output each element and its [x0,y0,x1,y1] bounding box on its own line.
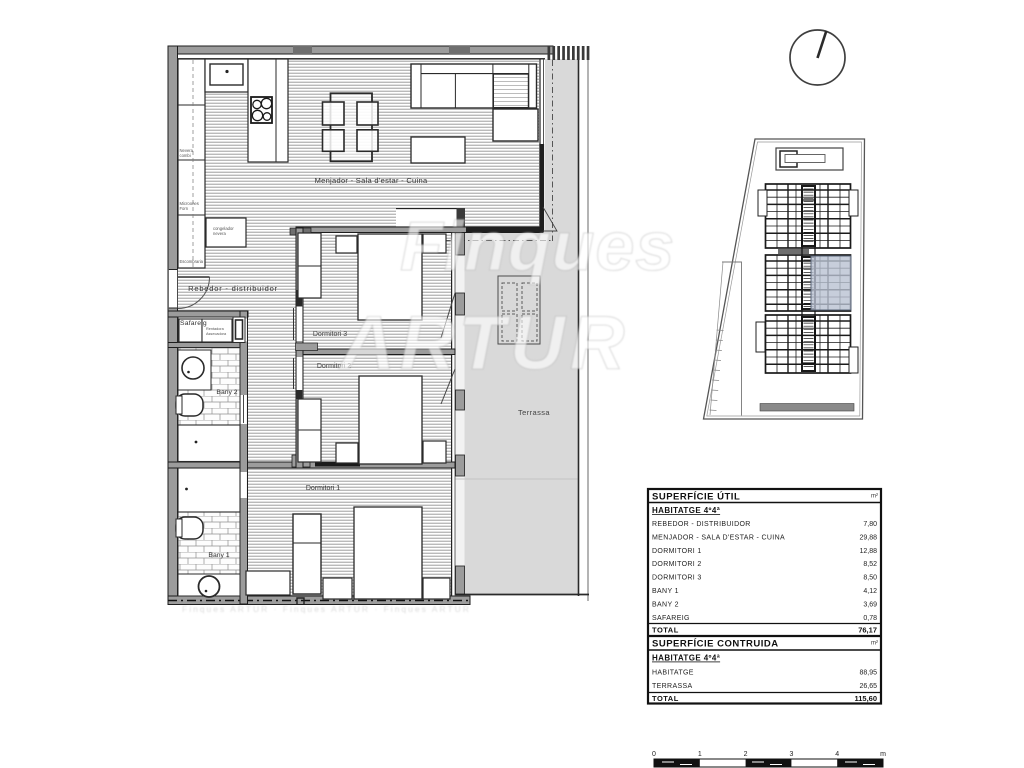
svg-text:2: 2 [744,751,748,758]
svg-text:Rentadora: Rentadora [206,327,225,331]
svg-text:0,78: 0,78 [863,615,877,622]
svg-text:Safareig: Safareig [180,320,207,327]
svg-text:4: 4 [835,751,839,758]
svg-text:115,60: 115,60 [854,694,877,703]
svg-text:DORMITORI 1: DORMITORI 1 [652,548,702,555]
svg-text:combi: combi [180,153,191,158]
svg-text:m²: m² [871,494,878,500]
svg-text:7,80: 7,80 [863,521,877,528]
svg-text:DORMITORI 2: DORMITORI 2 [652,561,702,568]
svg-text:8,50: 8,50 [863,575,877,582]
svg-text:Terrassa: Terrassa [518,408,550,417]
svg-text:BANY 1: BANY 1 [652,588,679,595]
svg-text:3: 3 [789,751,793,758]
svg-text:HABITATGE: HABITATGE [652,670,694,677]
svg-text:3,69: 3,69 [863,601,877,608]
svg-text:m: m [880,751,886,758]
svg-text:Menjador - Sala d'estar - Cuin: Menjador - Sala d'estar - Cuina [315,176,428,185]
svg-text:29,88: 29,88 [859,534,877,541]
svg-text:Bany 2: Bany 2 [216,389,237,396]
svg-text:4,12: 4,12 [863,588,877,595]
svg-text:SUPERFÍCIE ÚTIL: SUPERFÍCIE ÚTIL [652,491,740,503]
svg-text:TERRASSA: TERRASSA [652,683,693,690]
svg-text:Assecadora: Assecadora [206,332,227,336]
svg-text:Escombraria: Escombraria [180,259,204,264]
svg-text:8,52: 8,52 [863,561,877,568]
svg-text:26,65: 26,65 [859,683,877,690]
svg-text:TOTAL: TOTAL [652,694,679,703]
svg-text:BANY 2: BANY 2 [652,601,679,608]
svg-text:HABITATGE 4º4ª: HABITATGE 4º4ª [652,654,720,663]
svg-text:Finques: Finques [400,207,675,285]
svg-text:SAFAREIG: SAFAREIG [652,615,690,622]
svg-text:DORMITORI 3: DORMITORI 3 [652,575,702,582]
svg-text:Dormitori 1: Dormitori 1 [306,485,340,492]
svg-text:Rebedor - distribuidor: Rebedor - distribuidor [188,284,278,293]
svg-text:0: 0 [652,751,656,758]
svg-text:TOTAL: TOTAL [652,626,679,635]
svg-text:REBEDOR - DISTRIBUIDOR: REBEDOR - DISTRIBUIDOR [652,521,751,528]
svg-text:m²: m² [871,641,878,647]
svg-text:Forn: Forn [180,206,189,211]
svg-text:nevera: nevera [213,231,226,236]
svg-text:HABITATGE 4º4ª: HABITATGE 4º4ª [652,506,720,515]
svg-text:88,95: 88,95 [859,670,877,677]
svg-text:76,17: 76,17 [858,626,877,635]
svg-text:Bany 1: Bany 1 [208,552,229,559]
svg-text:MENJADOR - SALA D'ESTAR - CUIN: MENJADOR - SALA D'ESTAR - CUINA [652,534,785,541]
svg-text:Finques ARTUR · Finques ARTUR: Finques ARTUR · Finques ARTUR · Finques … [182,604,471,614]
svg-text:1: 1 [698,751,702,758]
svg-text:ARTUR: ARTUR [338,301,630,386]
svg-text:SUPERFÍCIE CONTRUIDA: SUPERFÍCIE CONTRUIDA [652,639,779,650]
svg-text:12,88: 12,88 [859,548,877,555]
